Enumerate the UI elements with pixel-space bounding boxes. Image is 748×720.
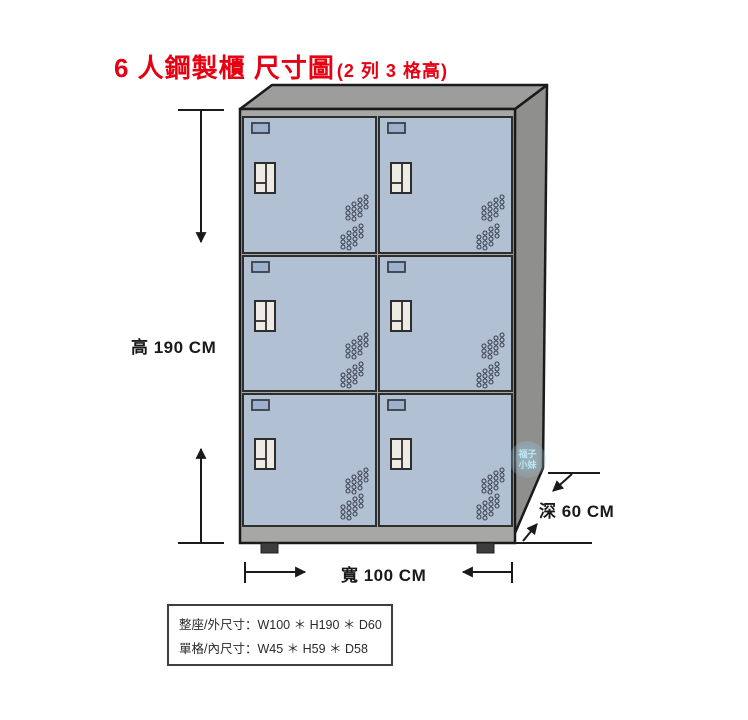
name-card-slot: [388, 123, 405, 133]
handle-lock: [255, 439, 275, 469]
height-dimension-lines: [178, 110, 224, 543]
page-title-main: 6 人鋼製櫃 尺寸圖: [114, 48, 335, 85]
locker-door-r3-c1: [243, 394, 376, 526]
cabinet-foot-right: [477, 543, 494, 553]
cabinet-top-face: [240, 85, 547, 109]
spec-box: 整座/外尺寸：W100 ＊ H190 ＊ D60 單格/內尺寸：W45 ＊ H5…: [167, 604, 393, 666]
page-title: 6 人鋼製櫃 尺寸圖(2 列 3 格高): [114, 48, 448, 85]
locker-door-r2-c1: [243, 256, 376, 391]
locker-door-r2-c2: [379, 256, 512, 391]
spec-inner-dimensions: 單格/內尺寸：W45 ＊ H59 ＊ D58: [179, 637, 391, 661]
handle-lock: [391, 439, 411, 469]
name-card-slot: [252, 400, 269, 410]
page-title-suffix: (2 列 3 格高): [337, 57, 448, 83]
cabinet-foot-left: [261, 543, 278, 553]
locker-door-r3-c2: [379, 394, 512, 526]
handle-lock: [391, 163, 411, 193]
cabinet-side-face: [512, 85, 547, 540]
name-card-slot: [388, 262, 405, 272]
depth-dimension-label: 深 60 CM: [539, 497, 614, 522]
name-card-slot: [252, 123, 269, 133]
width-dimension-label: 寬 100 CM: [341, 561, 426, 586]
handle-lock: [255, 163, 275, 193]
name-card-slot: [388, 400, 405, 410]
height-dimension-label: 高 190 CM: [131, 333, 216, 358]
handle-lock: [255, 301, 275, 331]
spec-outer-dimensions: 整座/外尺寸：W100 ＊ H190 ＊ D60: [179, 613, 391, 637]
locker-door-r1-c1: [243, 117, 376, 253]
page: 6 人鋼製櫃 尺寸圖(2 列 3 格高) 高 190 CM 寬 100 CM 深…: [0, 0, 748, 720]
handle-lock: [391, 301, 411, 331]
name-card-slot: [252, 262, 269, 272]
locker-door-r1-c2: [379, 117, 512, 253]
